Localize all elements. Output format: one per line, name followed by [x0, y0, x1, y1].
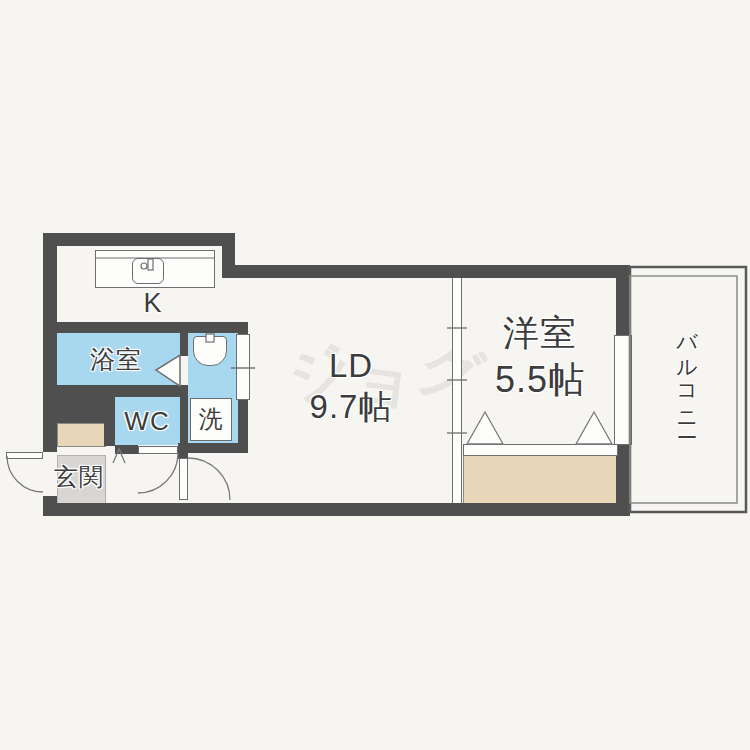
western-room-name: 洋室 [495, 310, 585, 357]
living-dining-name: LD [310, 345, 393, 386]
laundry-label: 洗 [199, 403, 224, 435]
ld-door-arc [188, 458, 230, 500]
closet-door-triangle-left [467, 412, 503, 444]
kitchen-sink [132, 258, 164, 284]
wall-under-laundry [188, 443, 248, 453]
bathroom-label: 浴室 [90, 343, 142, 376]
front-door-arc [7, 456, 43, 492]
living-dining-size: 9.7帖 [310, 386, 393, 427]
watermark-char-3: グ [409, 323, 493, 421]
kitchen-label: K [143, 288, 162, 319]
wall-top-main [222, 265, 630, 278]
balcony-label: バルコニー [673, 318, 701, 429]
toilet-label: WC [124, 406, 169, 437]
entrance-label: 玄関 [54, 461, 104, 493]
wc-door-arc [138, 453, 178, 493]
wall-strip-cabinet [104, 423, 115, 446]
wall-block-under-bath [57, 385, 115, 423]
washbasin-icon [193, 336, 227, 366]
wall-kitchen-bath [43, 322, 247, 333]
laundry-sliding-door [236, 334, 250, 400]
wc-door-leaf [138, 446, 178, 454]
western-room-label: 洋室 5.5帖 [495, 310, 585, 404]
closet-door-triangle-right [576, 412, 612, 444]
balcony-window [614, 335, 632, 445]
living-dining-label: LD 9.7帖 [310, 345, 393, 428]
floorplan-canvas: ジ ョ グ [0, 0, 750, 750]
western-room-size: 5.5帖 [495, 357, 585, 404]
shoe-cabinet [57, 423, 106, 447]
closet-front [463, 444, 618, 456]
wall-bottom [43, 503, 630, 516]
closet-floor [463, 455, 620, 505]
front-door-leaf [6, 452, 43, 459]
wall-wc-laundry [180, 385, 188, 443]
wall-top-kitchen [43, 233, 235, 246]
wall-stub-hall [178, 443, 188, 459]
partition-sliding-doors [452, 278, 462, 503]
wall-under-wc [115, 445, 138, 454]
ld-door-leaf [179, 458, 188, 500]
wall-bath-laundry-upper [180, 332, 188, 356]
